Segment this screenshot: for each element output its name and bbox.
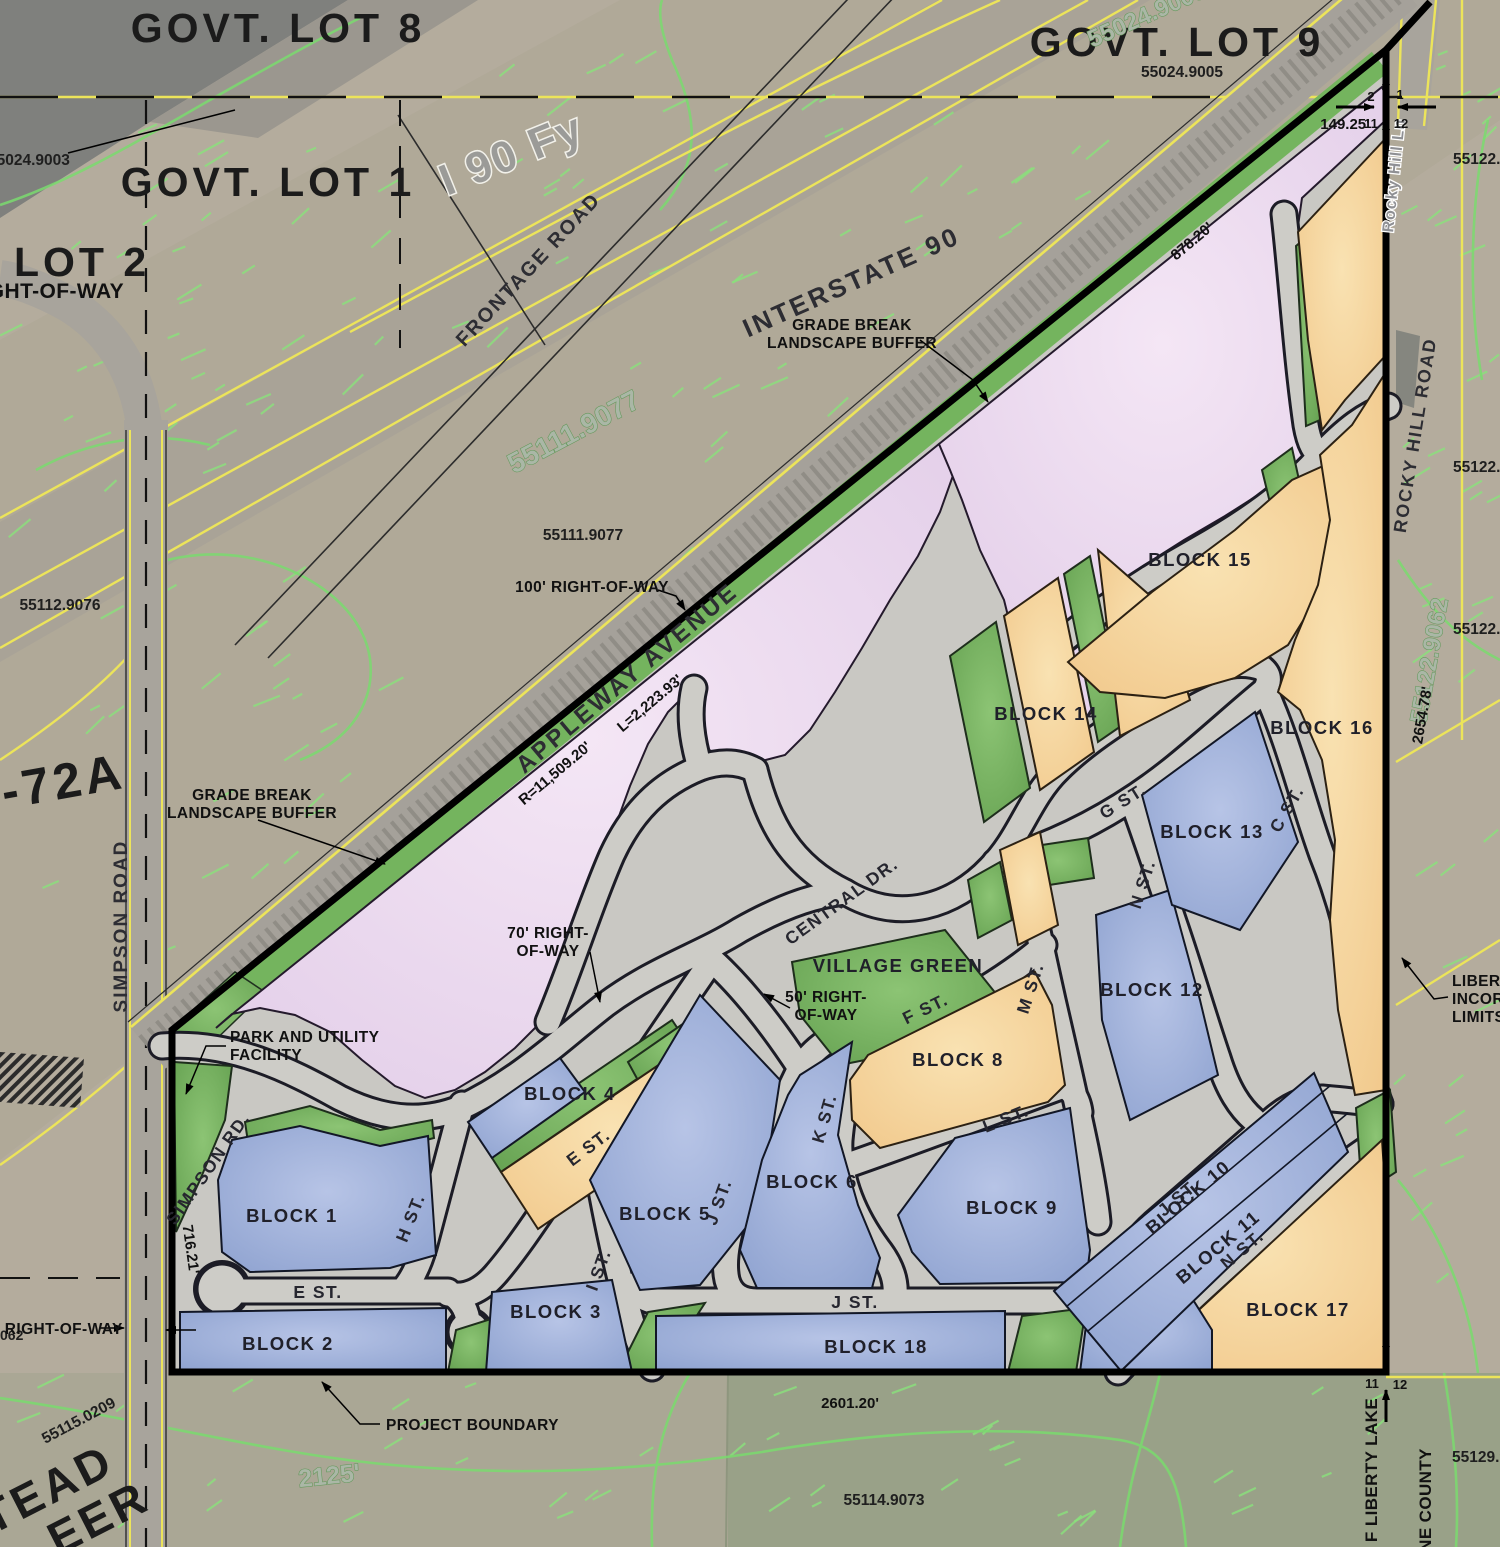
label-govt-lot-1: GOVT. LOT 1 xyxy=(121,159,416,205)
label-park-1: PARK AND UTILITY xyxy=(230,1029,380,1046)
label-e-st-1: E ST. xyxy=(293,1282,342,1302)
label-row-50b: OF-WAY xyxy=(795,1007,858,1024)
label-row-50a: 50' RIGHT- xyxy=(785,989,867,1006)
label-parcel-9073: 55114.9073 xyxy=(843,1492,924,1509)
label-grade-break-1a: GRADE BREAK xyxy=(792,317,912,334)
label-corner-11: 11 xyxy=(1364,116,1378,131)
label-block-6: BLOCK 6 xyxy=(766,1171,858,1192)
label-lot2-row: RIGHT-OF-WAY xyxy=(0,280,124,303)
label-row-70a: 70' RIGHT- xyxy=(507,925,589,942)
label-j-st-2: J ST. xyxy=(831,1292,878,1312)
label-block-14: BLOCK 14 xyxy=(994,703,1098,724)
label-liberty-2: INCORPO xyxy=(1452,991,1500,1008)
label-parcel-9005: 55024.9005 xyxy=(1141,64,1223,81)
label-grade-break-2b: LANDSCAPE BUFFER xyxy=(167,805,337,822)
label-block-8: BLOCK 8 xyxy=(912,1049,1004,1070)
label-park-2: FACILITY xyxy=(230,1047,302,1064)
label-simpson-road: SIMPSON ROAD xyxy=(111,840,132,1013)
label-block-3: BLOCK 3 xyxy=(510,1301,602,1322)
label-dim-2601: 2601.20' xyxy=(821,1395,879,1412)
label-liberty-1: LIBERTY xyxy=(1452,973,1500,990)
label-lot-2: LOT 2 xyxy=(14,239,150,285)
site-plan-map: GOVT. LOT 8 GOVT. LOT 9 GOVT. LOT 1 LOT … xyxy=(0,0,1500,1547)
label-corner-1: 1 xyxy=(1396,87,1403,102)
label-parcel-90c: 55122.90 xyxy=(1453,621,1500,638)
label-block-18: BLOCK 18 xyxy=(824,1336,928,1357)
label-corner-2: 2 xyxy=(1367,89,1374,104)
label-county: NE COUNTY xyxy=(1416,1448,1435,1547)
label-parcel-90b: 55122.90 xyxy=(1453,459,1500,476)
label-block-15: BLOCK 15 xyxy=(1148,549,1252,570)
label-liberty-3: LIMITS xyxy=(1452,1009,1500,1026)
label-govt-lot-9: GOVT. LOT 9 xyxy=(1030,19,1325,65)
label-row-100: 100' RIGHT-OF-WAY xyxy=(515,579,669,596)
label-row-partial: ' RIGHT-OF-WAY xyxy=(0,1321,123,1338)
label-village-green: VILLAGE GREEN xyxy=(813,955,984,976)
label-city-liberty-lake: F LIBERTY LAKE xyxy=(1362,1398,1381,1542)
label-block-5: BLOCK 5 xyxy=(619,1203,711,1224)
label-parcel-9129: 55129.90 xyxy=(1452,1449,1500,1466)
label-parcel-9077: 55111.9077 xyxy=(543,527,623,544)
block-1-area xyxy=(218,1126,436,1272)
label-dim-149: 149.25' xyxy=(1320,116,1369,133)
culvert-hatch xyxy=(0,1052,84,1108)
label-govt-lot-8: GOVT. LOT 8 xyxy=(131,5,426,51)
label-block-4: BLOCK 4 xyxy=(524,1083,616,1104)
label-block-16: BLOCK 16 xyxy=(1270,717,1374,738)
label-block-9: BLOCK 9 xyxy=(966,1197,1058,1218)
label-block-2: BLOCK 2 xyxy=(242,1333,334,1354)
label-block-13: BLOCK 13 xyxy=(1160,821,1264,842)
label-corner-b11: 11 xyxy=(1365,1376,1379,1391)
label-row-70b: OF-WAY xyxy=(517,943,580,960)
label-parcel-9003: 55024.9003 xyxy=(0,152,70,169)
plat-svg: GOVT. LOT 8 GOVT. LOT 9 GOVT. LOT 1 LOT … xyxy=(0,0,1500,1547)
label-grade-break-1b: LANDSCAPE BUFFER xyxy=(767,335,937,352)
label-project-boundary: PROJECT BOUNDARY xyxy=(386,1417,559,1434)
label-grade-break-2a: GRADE BREAK xyxy=(192,787,312,804)
label-parcel-9076: 55112.9076 xyxy=(19,597,100,614)
label-corner-b12: 12 xyxy=(1393,1377,1407,1392)
label-corner-12: 12 xyxy=(1394,116,1408,131)
label-block-12: BLOCK 12 xyxy=(1100,979,1204,1000)
label-parcel-90a: 55122.90 xyxy=(1453,151,1500,168)
block-3-area xyxy=(486,1280,632,1372)
label-block-1: BLOCK 1 xyxy=(246,1205,338,1226)
label-block-17: BLOCK 17 xyxy=(1246,1299,1350,1320)
